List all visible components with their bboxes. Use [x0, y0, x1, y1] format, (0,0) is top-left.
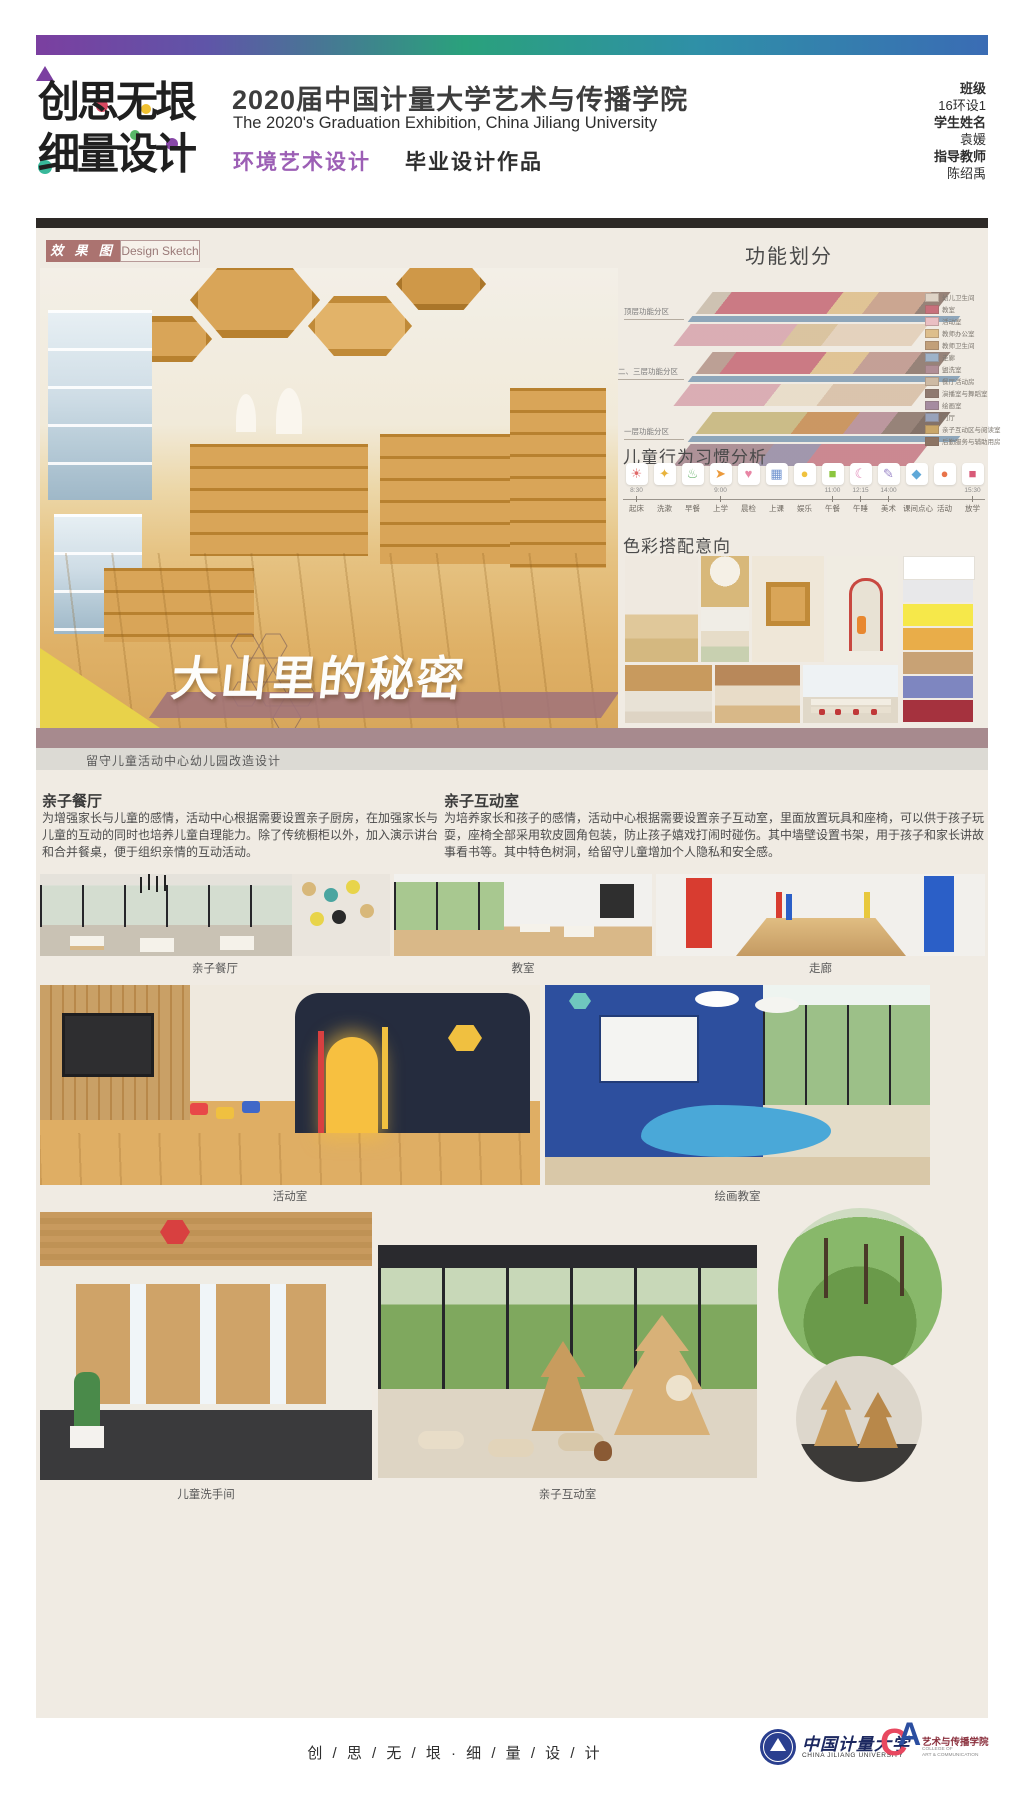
- legend-chip: [925, 329, 939, 338]
- college-name-cn: 艺术与传播学院: [922, 1734, 989, 1748]
- floor-cushions: [190, 1103, 208, 1115]
- bookshelf: [190, 444, 368, 556]
- palette-swatch: [903, 556, 975, 580]
- class-label: 班级: [960, 81, 986, 96]
- behavior-item: ●活动: [931, 463, 958, 514]
- mauve-band: [36, 728, 988, 748]
- palette-swatch: [903, 628, 973, 650]
- paragraph-text-interaction: 为培养家长和孩子的感情，活动中心根据需要设置亲子互动室，里面放置玩具和座椅，可以…: [444, 810, 984, 861]
- advisor-label: 指导教师: [934, 149, 986, 164]
- college-logo-a-icon: A: [898, 1716, 921, 1753]
- legend-item: 绘画室: [925, 400, 987, 412]
- tree-trunks: [824, 1238, 828, 1298]
- legend-chip: [925, 401, 939, 410]
- poster-board: 创思无垠 细量设计 2020届中国计量大学艺术与传播学院 The 2020's …: [0, 0, 1024, 1800]
- red-door-frame: [686, 878, 712, 948]
- window-left: [48, 310, 152, 500]
- behavior-item: ✦洗漱: [651, 463, 678, 514]
- photo-classroom: [394, 874, 652, 956]
- footprints-icon: ➤: [710, 463, 732, 485]
- legend-item: 教师卫生间: [925, 340, 987, 352]
- photo-caption: 亲子互动室: [378, 1486, 757, 1502]
- arch-trim: [318, 1031, 324, 1133]
- hero-caption: 留守儿童活动中心幼儿园改造设计: [86, 752, 281, 769]
- behavior-item: ■15:30放学: [959, 463, 986, 514]
- legend-item: 门厅: [925, 412, 987, 424]
- paragraph-text-dining: 为增强家长与儿童的感情，活动中心根据需要设置亲子厨房，在加强家长与儿童的互动的同…: [42, 810, 438, 861]
- wall-arch-niche: [236, 394, 256, 432]
- photo-caption: 绘画教室: [545, 1188, 930, 1204]
- legend-chip: [925, 389, 939, 398]
- legend-item: 亲子互动区与阅读室: [925, 424, 987, 436]
- function-zoning-title: 功能划分: [745, 240, 833, 269]
- legend-item: 活动室: [925, 316, 987, 328]
- photo-kids-washroom: [40, 1212, 372, 1480]
- plant-pot: [70, 1426, 104, 1448]
- legend-chip: [925, 365, 939, 374]
- school-bus-icon: ■: [962, 463, 984, 485]
- palette-swatch: [903, 700, 973, 722]
- photo-parent-child-dining: [40, 874, 390, 956]
- behavior-item: ☀8:30起床: [623, 463, 650, 514]
- legend-item: 餐厅活动房: [925, 376, 987, 388]
- duck-icon: ●: [794, 463, 816, 485]
- behavior-timeline: ☀8:30起床 ✦洗漱 ♨早餐 ➤9:00上学 ♥晨检 ▦上课 ●娱乐 ■11:…: [623, 463, 985, 523]
- logo-text-line2: 细量设计: [38, 119, 194, 181]
- far-door-frames: [776, 892, 782, 918]
- behavior-item: ☾12:15午睡: [847, 463, 874, 514]
- top-gradient-bar: [36, 35, 988, 55]
- wooden-tree-cutout: [814, 1380, 858, 1446]
- photo-caption: 活动室: [40, 1188, 540, 1204]
- reference-photo-ceiling: [701, 556, 749, 607]
- wooden-tree-cutout: [858, 1392, 898, 1448]
- student-name-value: 袁媛: [960, 132, 986, 147]
- reference-photo-wood-corridor: [715, 665, 800, 723]
- palette-swatch: [903, 676, 973, 698]
- photo-caption: 儿童洗手间: [40, 1486, 372, 1502]
- polka-dot-wall: [302, 882, 316, 896]
- behavior-item: ■11:00午餐: [819, 463, 846, 514]
- teddy-bear: [594, 1441, 612, 1461]
- page-subtitle-en: The 2020's Graduation Exhibition, China …: [233, 114, 657, 133]
- glowing-arch-doorway: [326, 1037, 378, 1133]
- legend-item: 演播室与舞蹈室: [925, 388, 987, 400]
- reference-photo-window: [752, 556, 824, 662]
- major-label: 环境艺术设计: [233, 146, 371, 176]
- cloud-lamps: [695, 991, 739, 1007]
- circle-photo-wooden-trees: [796, 1356, 922, 1482]
- snack-icon: ◆: [906, 463, 928, 485]
- behavior-item: ●娱乐: [791, 463, 818, 514]
- advisor-value: 陈绍禹: [947, 166, 986, 181]
- legend-chip: [925, 293, 939, 302]
- behavior-item: ♨早餐: [679, 463, 706, 514]
- lunch-icon: ■: [822, 463, 844, 485]
- legend-chip: [925, 305, 939, 314]
- legend-item: 幼儿卫生间: [925, 292, 987, 304]
- circle-photo-park: [778, 1208, 942, 1372]
- legend-item: 教室: [925, 304, 987, 316]
- ball-icon: ●: [934, 463, 956, 485]
- reference-photo-corridor: [625, 556, 698, 662]
- legend-chip: [925, 437, 939, 446]
- cactus-plant: [74, 1372, 100, 1428]
- legend-chip: [925, 377, 939, 386]
- palette-swatch: [903, 604, 973, 626]
- ceiling-hexagon-icon: [396, 268, 486, 310]
- blackboard: [600, 884, 634, 918]
- color-scheme-title: 色彩搭配意向: [623, 532, 731, 557]
- section-tab-cn: 效 果 图: [46, 240, 120, 262]
- pendant-lamps: [148, 874, 150, 890]
- reference-photo-wood-hall: [625, 665, 712, 723]
- toothpaste-icon: ✦: [654, 463, 676, 485]
- legend-chip: [925, 341, 939, 350]
- hero-title: 大山里的秘密: [168, 640, 469, 709]
- photo-corridor: [656, 874, 985, 956]
- nap-icon: ☾: [850, 463, 872, 485]
- legend-item: 教师办公室: [925, 328, 987, 340]
- hex-wall-panels: [569, 993, 591, 1009]
- behavior-item: ♥晨检: [735, 463, 762, 514]
- legend-chip: [925, 317, 939, 326]
- college-name-en: COLLEGE OF ART & COMMUNICATION: [922, 1747, 979, 1759]
- blue-door-frame: [924, 876, 954, 952]
- wall-arch-niche: [276, 388, 302, 434]
- legend-item: 盥洗室: [925, 364, 987, 376]
- legend-item: 后勤服务与辅助用房: [925, 436, 987, 448]
- behavior-item: ◆课间点心: [903, 463, 930, 514]
- health-check-icon: ♥: [738, 463, 760, 485]
- photo-caption: 走廊: [656, 960, 985, 976]
- breakfast-icon: ♨: [682, 463, 704, 485]
- page-title: 2020届中国计量大学艺术与传播学院: [232, 78, 688, 117]
- paragraph-title-interaction: 亲子互动室: [444, 790, 519, 811]
- reference-photo-arch-corridor: [827, 556, 898, 662]
- wood-floor: [736, 918, 906, 956]
- floor-label-middle: 二、三层功能分区: [618, 366, 684, 380]
- photo-painting-classroom: [545, 985, 930, 1185]
- floor-label-ground: 一层功能分区: [624, 426, 684, 440]
- projector-screen: [599, 1015, 699, 1083]
- footer-slogan: 创 / 思 / 无 / 垠 · 细 / 量 / 设 / 计: [285, 1742, 625, 1763]
- ceiling-hexagon-icon: [190, 268, 320, 338]
- legend-chip: [925, 413, 939, 422]
- student-name-label: 学生姓名: [934, 115, 986, 130]
- blocks-icon: ▦: [766, 463, 788, 485]
- bookshelf-tall: [510, 388, 606, 568]
- desks: [520, 924, 550, 935]
- chalkboard: [62, 1013, 154, 1077]
- section-tab-en: Design Sketch: [120, 240, 200, 262]
- university-seal-icon: [760, 1729, 796, 1765]
- palette-swatch: [903, 580, 973, 602]
- photo-activity-room: [40, 985, 540, 1185]
- reference-photo-classroom: [803, 665, 898, 723]
- ceiling-hexagon-icon: [308, 296, 412, 356]
- legend-chip: [925, 353, 939, 362]
- wood-partitions: [76, 1284, 326, 1404]
- main-render-image: 大山里的秘密: [40, 268, 618, 728]
- behavior-item: ➤9:00上学: [707, 463, 734, 514]
- play-cushions: [418, 1431, 464, 1449]
- legend-chip: [925, 425, 939, 434]
- palette-swatch: [903, 652, 973, 674]
- student-info: 班级 16环设1 学生姓名 袁媛 指导教师 陈绍禹: [866, 80, 986, 182]
- header-divider-bar: [36, 218, 988, 228]
- behavior-item: ▦上课: [763, 463, 790, 514]
- paragraph-title-dining: 亲子餐厅: [42, 790, 102, 811]
- photo-caption: 亲子餐厅: [40, 960, 390, 976]
- class-value: 16环设1: [938, 98, 986, 113]
- sunrise-icon: ☀: [626, 463, 648, 485]
- reference-photo-atrium: [701, 610, 749, 662]
- floor-label-top: 顶层功能分区: [624, 306, 684, 320]
- art-palette-icon: ✎: [878, 463, 900, 485]
- photo-caption: 教室: [394, 960, 652, 976]
- behavior-item: ✎14:00美术: [875, 463, 902, 514]
- legend-item: 走廊: [925, 352, 987, 364]
- tree-hole: [666, 1375, 692, 1401]
- exhibition-logo: 创思无垠 细量设计: [38, 74, 226, 192]
- kids-tables: [70, 936, 104, 950]
- work-type-label: 毕业设计作品: [405, 146, 543, 176]
- photo-parent-child-interaction: [378, 1245, 757, 1478]
- wood-ceiling: [40, 1212, 372, 1266]
